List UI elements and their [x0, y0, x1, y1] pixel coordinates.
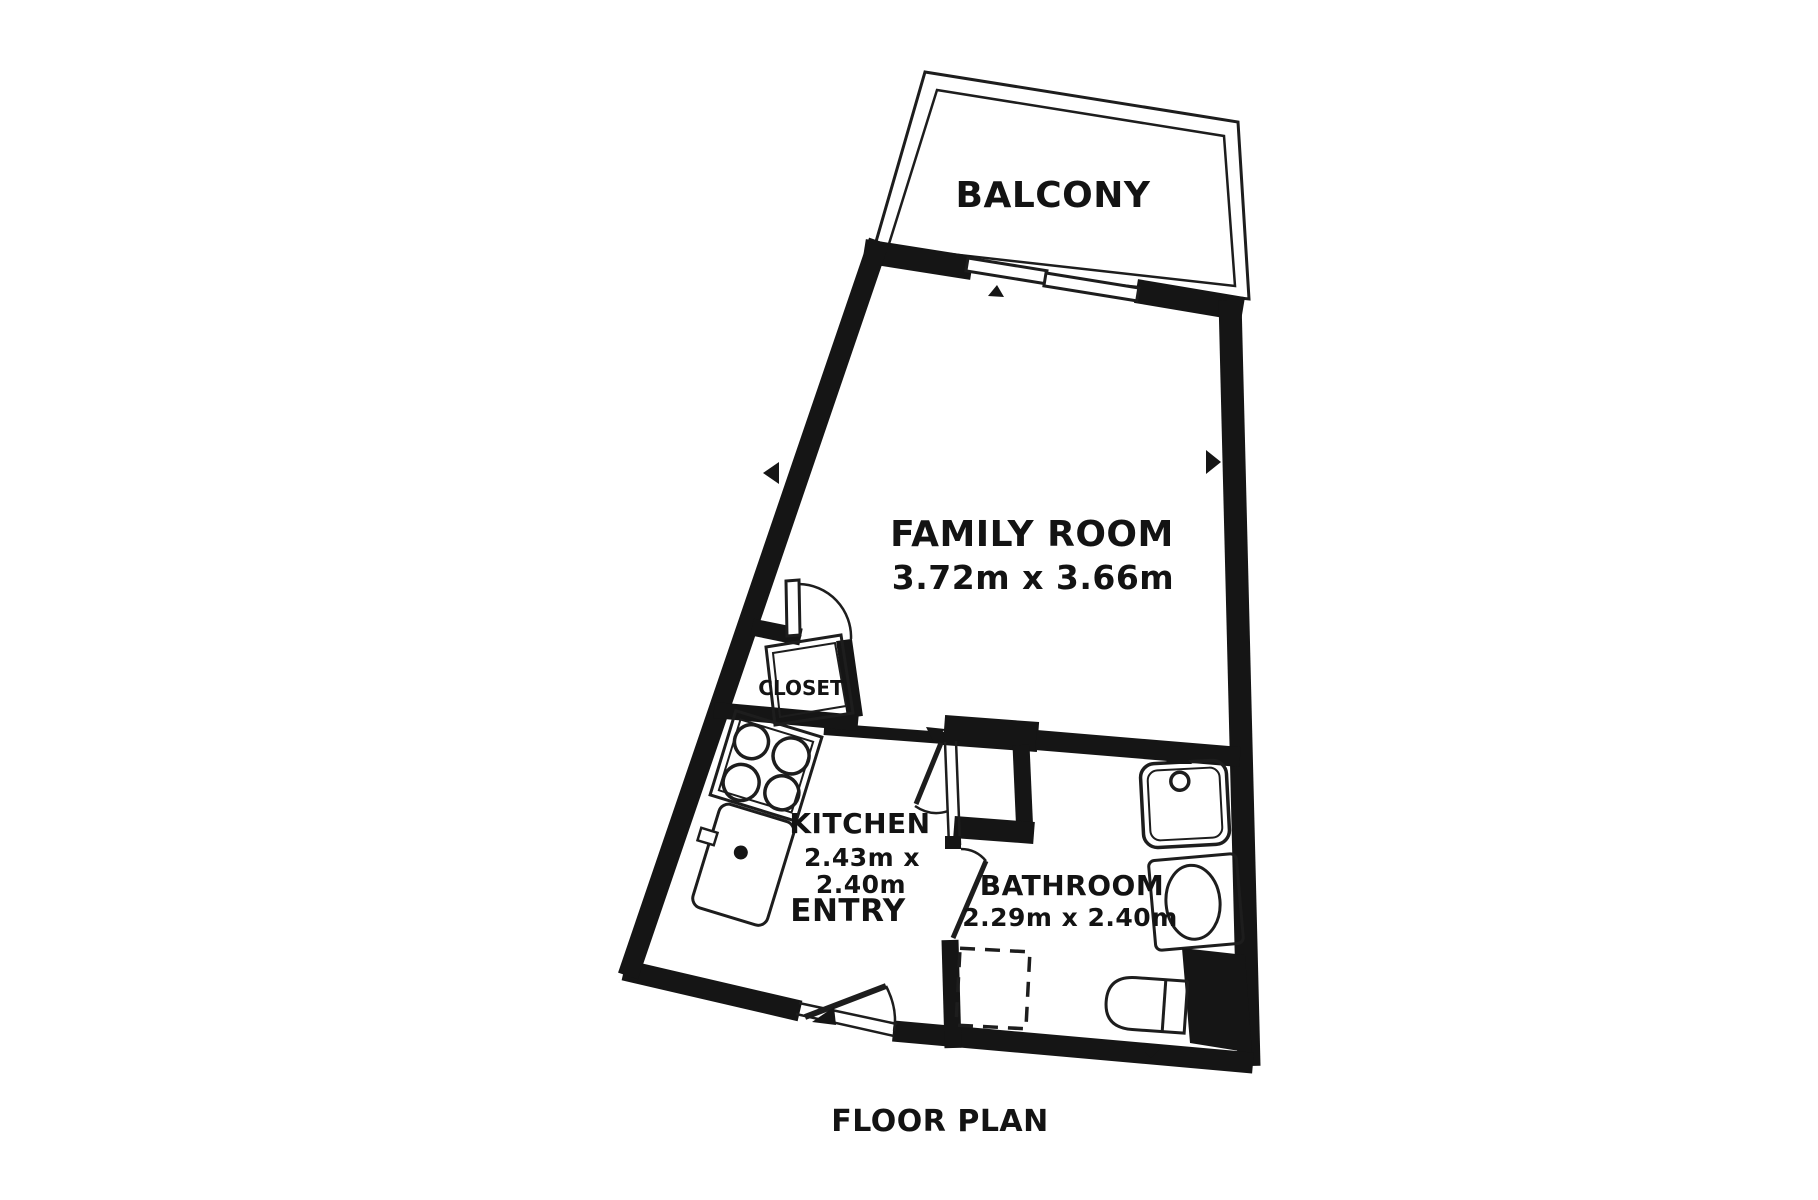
door-jamb-block	[945, 836, 961, 849]
closet-door-leaf	[786, 580, 800, 636]
bathroom-door-arc	[961, 849, 986, 861]
wall-shaft-bottom	[954, 827, 1034, 833]
entry-label: ENTRY	[790, 893, 905, 929]
wall-divider-lower	[950, 940, 953, 1048]
wall-divider-frame-outer	[945, 742, 949, 846]
left-wall-arrow	[763, 462, 779, 484]
bathroom-sink-drain	[1170, 772, 1189, 791]
bathtub-divider	[1162, 980, 1166, 1032]
floor-plan: BALCONY FAMILY ROOM 3.72m x 3.66m CLOSET…	[0, 0, 1818, 1200]
bathroom-label: BATHROOM	[980, 869, 1164, 902]
kitchen-label: KITCHEN	[789, 807, 930, 840]
wall-family-threshold	[824, 729, 944, 738]
kitchen-dimensions-1: 2.43m x	[804, 843, 920, 872]
entry-door-arc	[886, 986, 895, 1031]
kitchen-sink-drain	[732, 844, 749, 861]
wall-right	[1230, 300, 1249, 1066]
toilet-tank	[1148, 853, 1244, 950]
closet-door-arc	[799, 584, 851, 639]
bathroom-sink-inner	[1147, 767, 1223, 841]
bathroom-sink	[1140, 760, 1230, 848]
plan-title: FLOOR PLAN	[831, 1104, 1049, 1139]
door-direction-arrow-up	[988, 285, 1004, 297]
bathtub-outline	[1104, 976, 1187, 1033]
wall-family-south	[1036, 740, 1240, 757]
wall-bottom-left	[624, 970, 800, 1011]
kitchen-sink	[679, 798, 797, 928]
right-wall-arrow	[1206, 450, 1221, 474]
bathroom-dimensions: 2.29m x 2.40m	[962, 903, 1178, 932]
closet-label: CLOSET	[758, 676, 844, 700]
shower-base-dashed	[956, 948, 1030, 1029]
family-room-label: FAMILY ROOM	[890, 514, 1174, 555]
toilet	[1148, 853, 1244, 950]
family-door-leaf	[916, 743, 941, 804]
family-room-dimensions: 3.72m x 3.66m	[892, 558, 1174, 597]
kitchen-sink-basin	[690, 802, 796, 928]
balcony-label: BALCONY	[956, 175, 1151, 216]
bathtub	[1104, 976, 1187, 1033]
exterior-walls	[624, 241, 1253, 1066]
duct-block	[1182, 948, 1252, 1053]
sliding-door-panel-right	[1044, 273, 1139, 301]
sliding-door-panel-left	[966, 258, 1047, 284]
wall-block	[944, 730, 1038, 737]
